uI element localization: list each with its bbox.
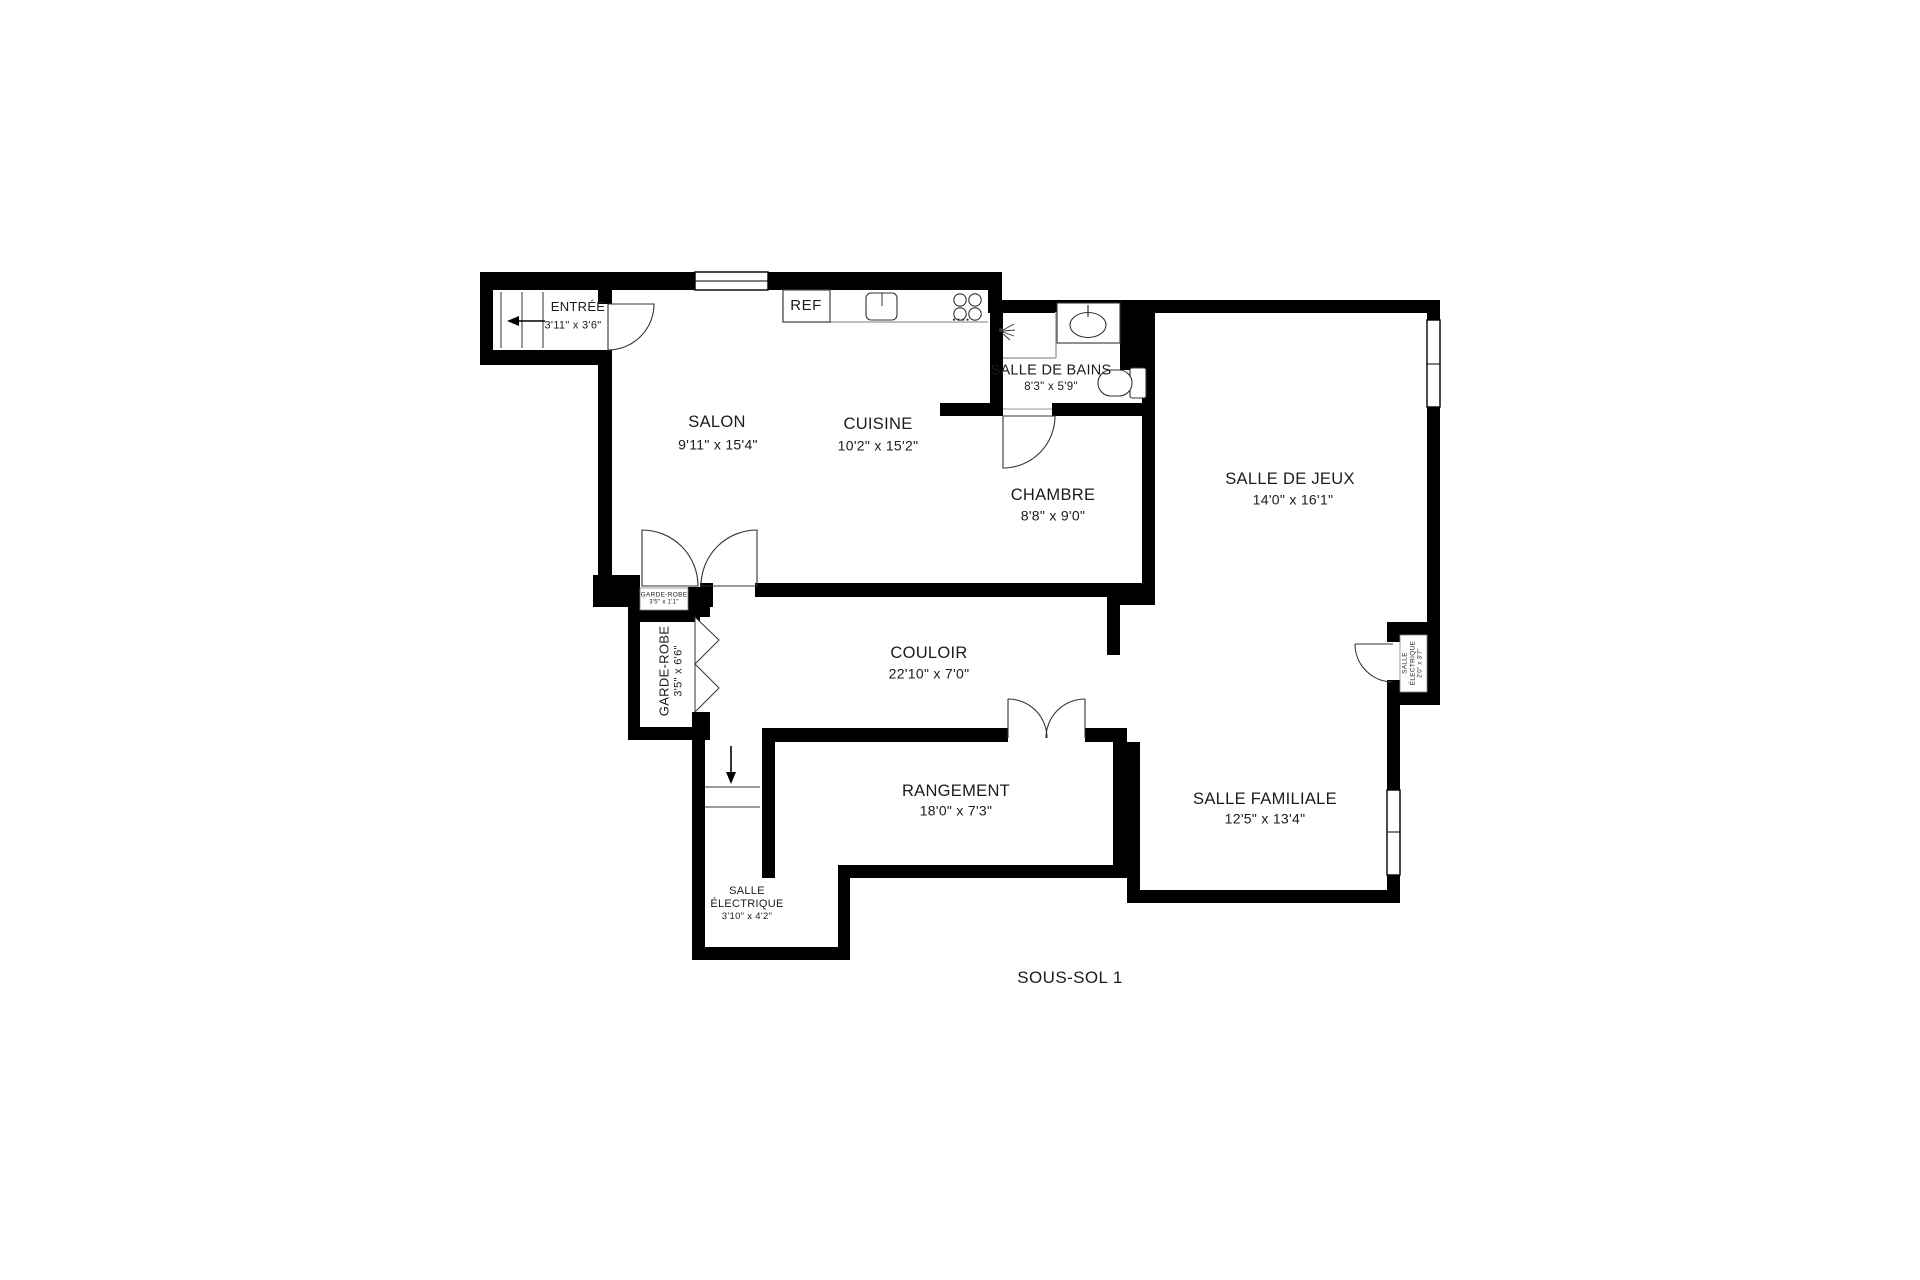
garde-robe-name: GARDE-ROBE [657, 626, 673, 716]
refrigerator-label: REF [790, 297, 822, 315]
room-dims-salle-de-jeux: 14'0" x 16'1" [1253, 492, 1334, 509]
walls-layer [480, 272, 1440, 960]
window-right-lower-icon [1387, 790, 1400, 875]
shower-icon [999, 312, 1056, 358]
room-dims-rangement: 18'0" x 7'3" [920, 803, 993, 820]
salle-electrique-line2: ÉLECTRIQUE [710, 898, 783, 911]
room-label-entree: ENTRÉE [551, 299, 606, 315]
salle-electrique-droite-line1: SALLE [1402, 641, 1410, 686]
kitchen-sink-icon [866, 293, 897, 320]
room-label-rangement: RANGEMENT [902, 782, 1010, 802]
room-dims-salle-familiale: 12'5" x 13'4" [1225, 811, 1306, 828]
salon-door-left-arc [642, 530, 698, 586]
room-label-cuisine: CUISINE [843, 415, 912, 435]
room-label-salon: SALON [688, 413, 745, 433]
stove-icon [953, 294, 981, 321]
salon-door-right-arc [701, 530, 757, 586]
room-label-garde-robe: GARDE-ROBE 3'5" x 6'6" [657, 626, 686, 716]
room-dims-chambre: 8'8" x 9'0" [1021, 508, 1086, 525]
room-label-garde-robe-petit: GARDE-ROBE 3'5" x 1'1" [641, 592, 688, 607]
plan-title: SOUS-SOL 1 [1017, 968, 1122, 988]
room-dims-salle-de-bains: 8'3" x 5'9" [1024, 381, 1078, 395]
salle-electrique-droite-dims: 2'0" x 3'7" [1417, 641, 1424, 686]
entrance-stairs-icon [501, 292, 545, 348]
double-door-left-arc [1008, 699, 1047, 738]
floor-plan: ENTRÉE 3'11" x 3'6" REF SALLE DE BAINS 8… [0, 0, 1920, 1280]
room-label-salle-electrique: SALLE ÉLECTRIQUE 3'10" x 4'2" [710, 885, 783, 923]
salle-electrique-line1: SALLE [710, 885, 783, 898]
niche-door-arc [1355, 644, 1393, 682]
down-stairs-icon [705, 746, 760, 807]
vanity-sink-icon [1057, 303, 1120, 343]
room-dims-entree: 3'11" x 3'6" [545, 319, 602, 332]
garde-robe-petit-name: GARDE-ROBE [641, 592, 688, 600]
room-label-salle-de-jeux: SALLE DE JEUX [1225, 470, 1355, 490]
room-dims-cuisine: 10'2" x 15'2" [838, 438, 919, 455]
entry-door-arc [608, 304, 654, 350]
room-dims-salon: 9'11" x 15'4" [678, 437, 758, 454]
bathroom-door-arc [1003, 416, 1055, 468]
room-label-salle-familiale: SALLE FAMILIALE [1193, 790, 1337, 810]
room-label-salle-electrique-droite: SALLE ÉLECTRIQUE 2'0" x 3'7" [1402, 641, 1425, 686]
room-label-salle-de-bains: SALLE DE BAINS [990, 362, 1111, 379]
double-door-right-arc [1046, 699, 1085, 738]
garde-robe-dims: 3'5" x 6'6" [672, 626, 685, 716]
salle-electrique-dims: 3'10" x 4'2" [710, 911, 783, 922]
room-dims-couloir: 22'10" x 7'0" [889, 666, 970, 683]
salle-electrique-droite-line2: ÉLECTRIQUE [1409, 641, 1417, 686]
room-label-couloir: COULOIR [890, 644, 967, 664]
floor-plan-canvas [0, 0, 1920, 1280]
window-top-icon [695, 272, 768, 290]
garde-robe-petit-dims: 3'5" x 1'1" [641, 599, 688, 606]
window-right-upper-icon [1427, 320, 1440, 407]
room-label-chambre: CHAMBRE [1011, 486, 1096, 506]
bifold-door-icon [695, 617, 719, 712]
